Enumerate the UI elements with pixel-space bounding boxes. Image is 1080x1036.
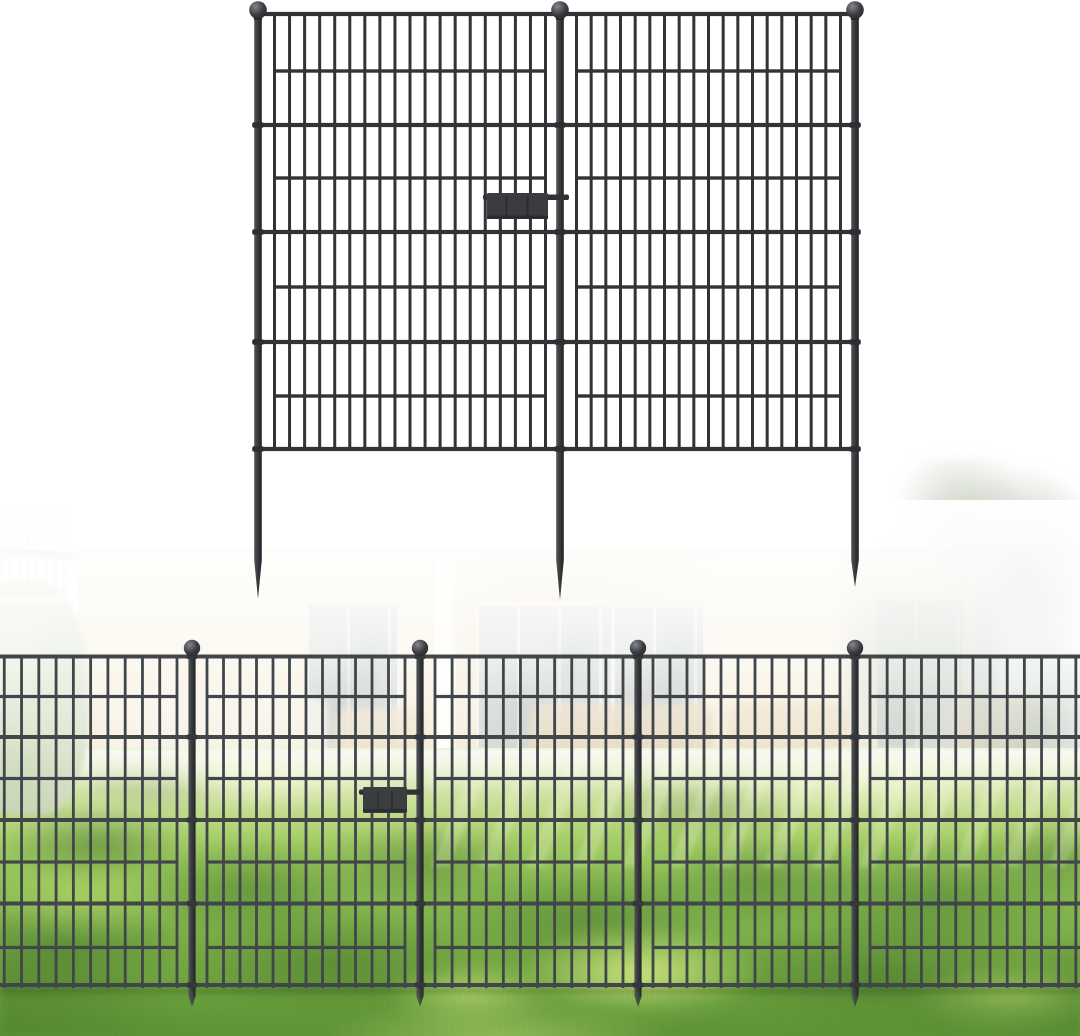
product-image: [0, 0, 1080, 1036]
fence-panels-illustration: [0, 0, 1080, 1036]
